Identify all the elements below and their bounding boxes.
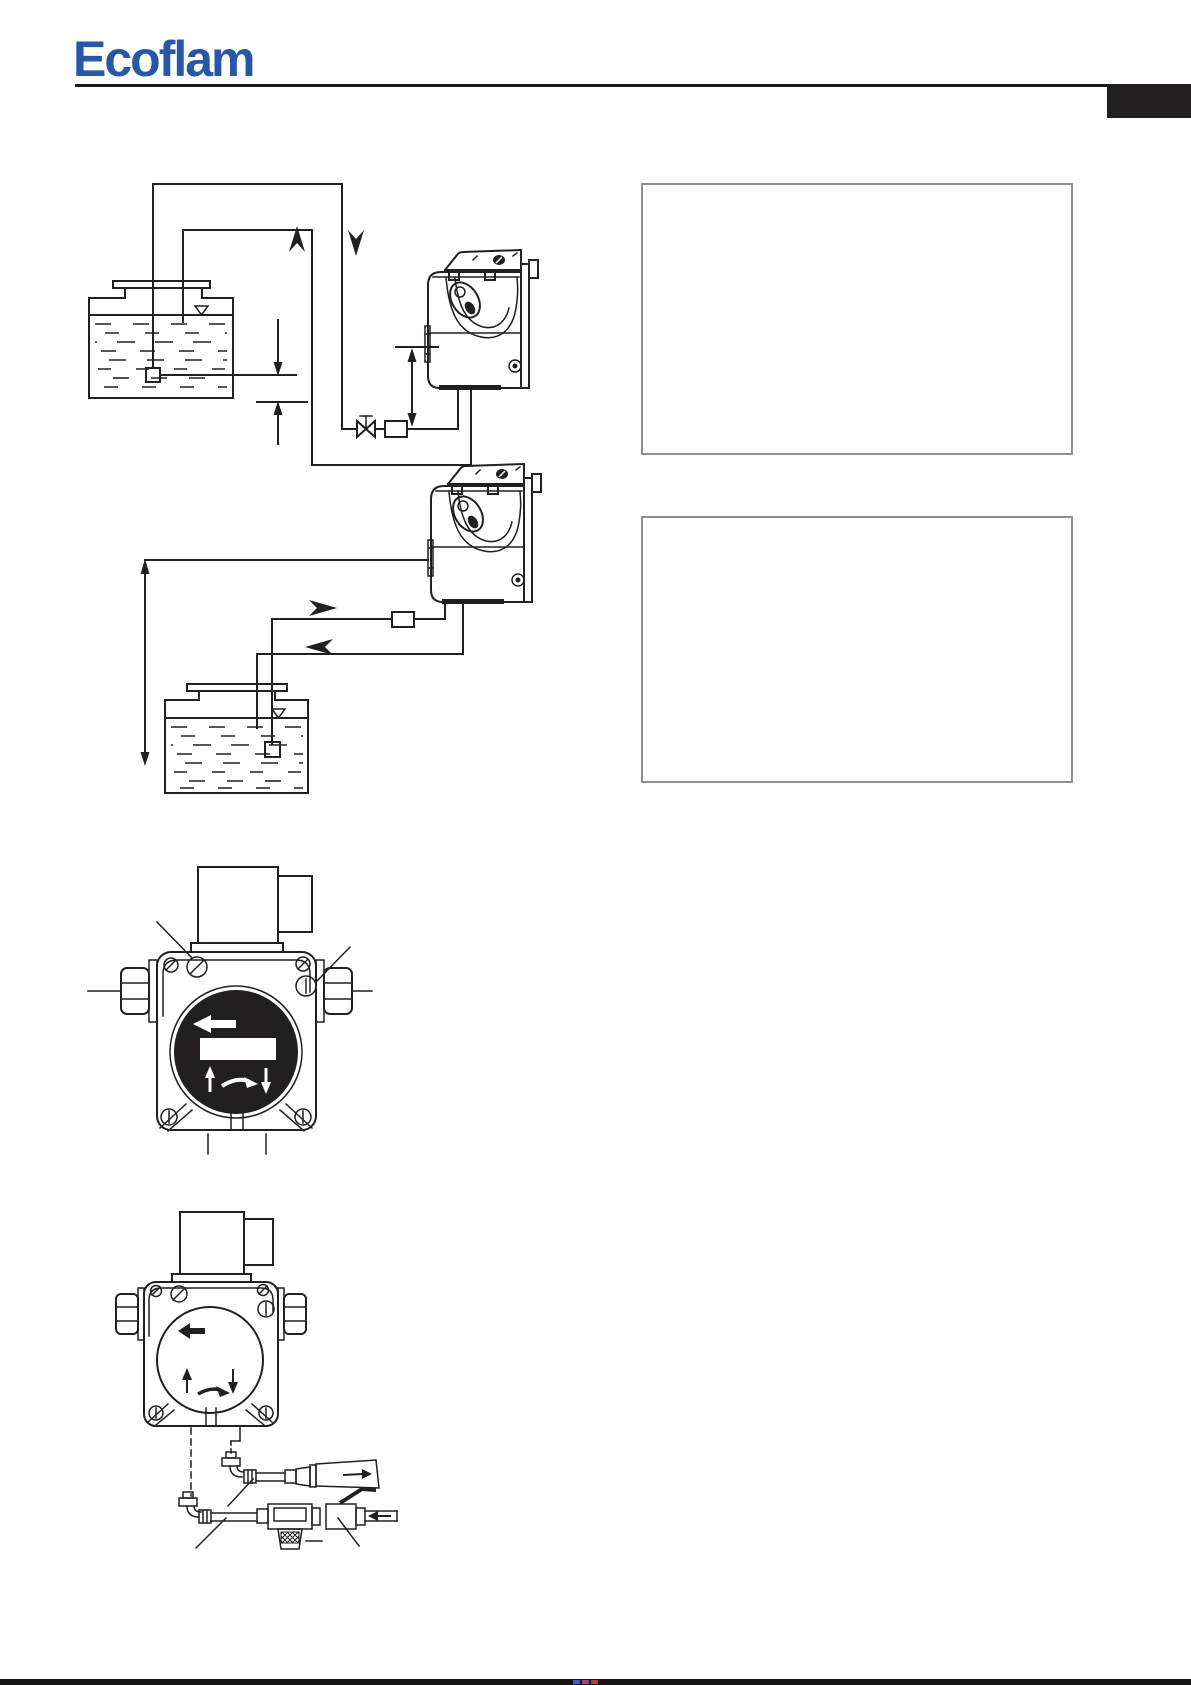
table-cell	[749, 589, 910, 782]
suction-hose-filter-valve-assembly	[179, 1489, 397, 1549]
oil-tank	[165, 684, 308, 793]
table-cell	[642, 589, 749, 782]
table-subheader	[749, 232, 910, 261]
flow-down-arrow-icon	[348, 230, 364, 256]
leader-line	[317, 947, 350, 981]
brand-logo: Ecoflam	[73, 30, 254, 88]
flow-left-arrow-icon	[305, 639, 333, 655]
foot-valve-icon	[146, 368, 160, 382]
shutoff-valve-icon	[357, 416, 375, 437]
line-filter-icon	[392, 612, 414, 627]
oil-pump-front-white	[80, 1190, 420, 1600]
suction-pipe	[272, 601, 445, 744]
port-direction-arrows	[182, 1368, 238, 1397]
base-webs	[148, 1404, 273, 1426]
registration-mark	[573, 1680, 580, 1684]
return-port-fitting	[278, 1288, 306, 1340]
table-subheader	[910, 232, 1072, 261]
oil-level-mark	[195, 306, 208, 315]
table-merged-header	[749, 517, 1072, 560]
registration-mark	[591, 1680, 598, 1684]
oil-tank	[89, 281, 233, 398]
oil-pump-front-black	[80, 850, 400, 1165]
suction-port-fitting	[116, 1288, 144, 1340]
burner-illustration	[425, 250, 538, 390]
pump-face-plate	[170, 986, 302, 1118]
diagram-siphon-installation	[60, 160, 580, 480]
table-cell	[749, 261, 910, 454]
flow-left-arrow-icon	[368, 1511, 378, 1521]
table-corner-cell	[642, 517, 749, 589]
return-port-fitting	[316, 960, 372, 1022]
solenoid-coil	[191, 867, 312, 952]
header-rule	[75, 84, 1107, 87]
table-cell	[910, 261, 1072, 454]
diagram-suction-installation	[80, 440, 580, 800]
table-cell	[910, 589, 1072, 782]
oil-level-mark	[272, 709, 285, 718]
pump-body	[144, 1282, 278, 1426]
burner-illustration	[428, 464, 541, 604]
table-subheader	[749, 560, 910, 589]
line-filter-icon	[385, 421, 407, 437]
document-page: Ecoflam	[0, 0, 1191, 1685]
spec-table-bottom	[641, 516, 1073, 783]
return-hose-assembly	[222, 1452, 379, 1506]
rotation-left-arrow-icon	[178, 1323, 205, 1339]
return-pipe	[257, 601, 463, 728]
cover-screws	[151, 1285, 275, 1318]
nameplate	[200, 1038, 276, 1060]
spec-table-top	[641, 183, 1073, 455]
flow-right-arrow-icon	[362, 1469, 372, 1479]
ball-valve	[326, 1489, 376, 1529]
oil-filter	[268, 1504, 312, 1549]
table-cell	[642, 261, 749, 454]
leader-line	[228, 1479, 253, 1506]
table-corner-cell	[642, 184, 749, 261]
return-connection-line	[231, 1426, 240, 1441]
table-merged-header	[749, 184, 1072, 232]
registration-mark	[582, 1680, 589, 1684]
flow-right-arrow-icon	[309, 600, 337, 616]
solenoid-coil	[172, 1212, 273, 1282]
suction-port-fitting	[88, 960, 157, 1022]
pump-face-plate	[157, 1307, 263, 1413]
dimension-suction-height	[141, 559, 150, 766]
dimension-pump-height	[396, 347, 438, 427]
page-corner-tab	[1107, 84, 1191, 118]
valve-lever	[340, 1489, 376, 1503]
oil-liquid-dashes	[171, 727, 303, 788]
table-subheader	[910, 560, 1072, 589]
